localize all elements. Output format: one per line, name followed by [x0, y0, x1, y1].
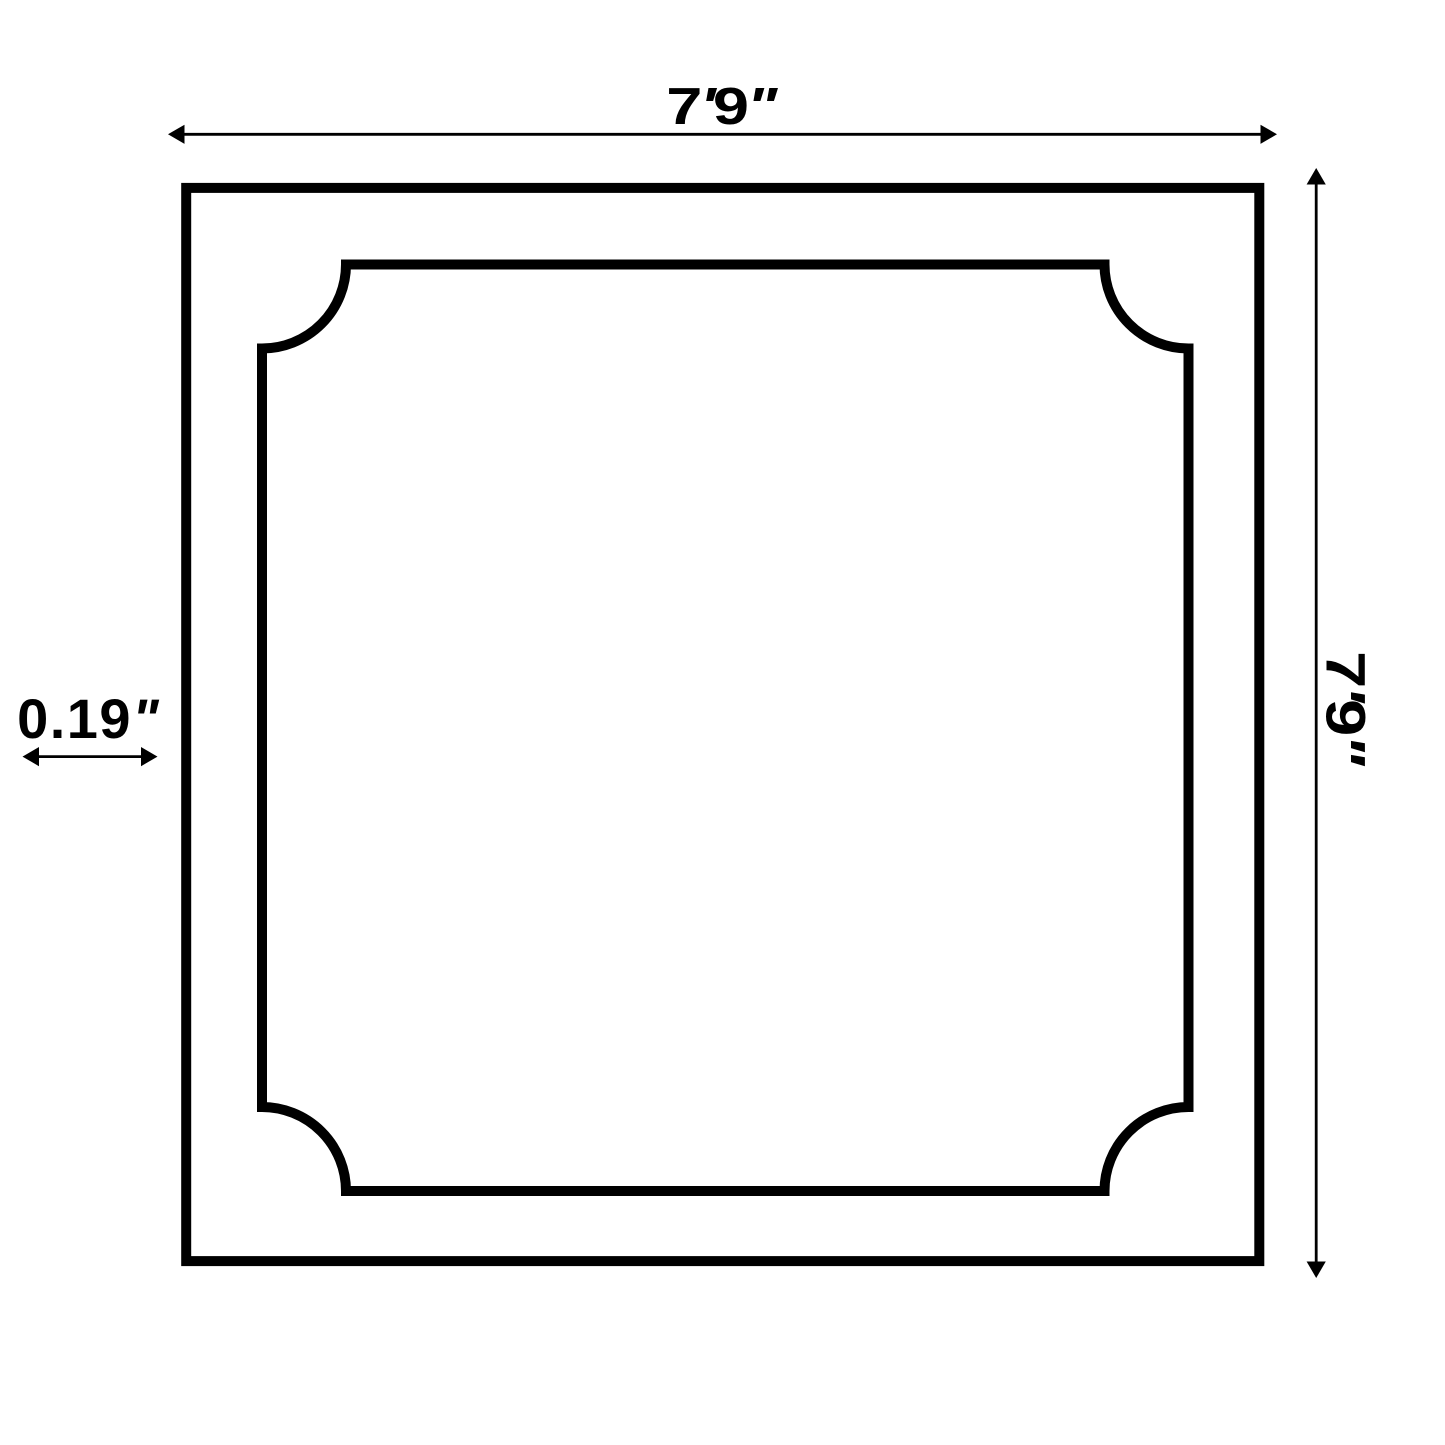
svg-text:0.19": 0.19"	[17, 687, 160, 750]
svg-text:7'9": 7'9"	[1314, 651, 1376, 766]
svg-text:7'9": 7'9"	[666, 78, 778, 135]
